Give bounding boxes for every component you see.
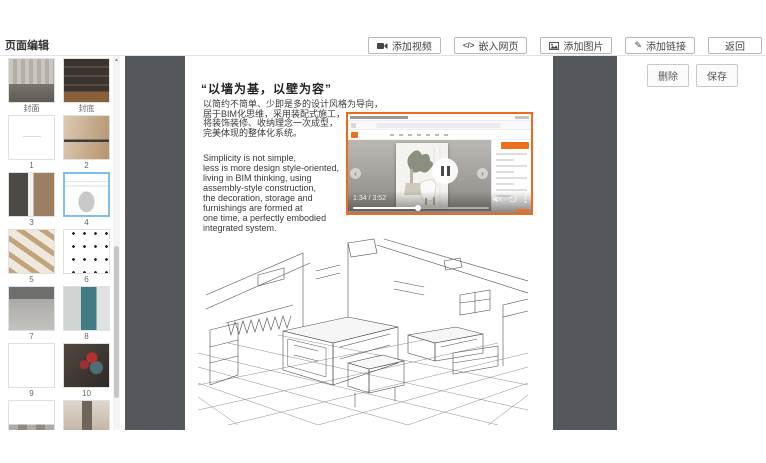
thumbnail-label: 5 bbox=[8, 274, 55, 285]
thumbnail-label: 封面 bbox=[8, 103, 55, 114]
page-thumbnail[interactable] bbox=[8, 400, 55, 430]
thumbnail-label: 3 bbox=[8, 217, 55, 228]
toolbar-button[interactable]: ✎ 添加链接 bbox=[625, 37, 695, 54]
thumbnail-image[interactable] bbox=[63, 172, 110, 217]
document-page[interactable]: “以墙为基，以壁为容” 以简约不简单、少即是多的设计风格为导向，居于BIM化思维… bbox=[185, 56, 553, 430]
thumbnail-grid: 封面 封底 1 2 3 4 5 6 7 8 9 bbox=[8, 58, 110, 430]
thumbnail-label: 2 bbox=[63, 160, 110, 171]
muted-speaker-icon[interactable] bbox=[493, 195, 502, 203]
app-logo bbox=[351, 132, 358, 138]
video-browser-titlebar bbox=[348, 114, 531, 121]
text-line: the decoration, storage and bbox=[203, 193, 339, 203]
toolbar-button[interactable]: </> 嵌入网页 bbox=[454, 37, 528, 54]
code-icon: </> bbox=[463, 42, 475, 50]
editor-canvas: “以墙为基，以壁为容” 以简约不简单、少即是多的设计风格为导向，居于BIM化思维… bbox=[125, 56, 617, 430]
browser-title-text bbox=[350, 116, 408, 119]
image-icon bbox=[549, 42, 559, 50]
thumbnail-label: 6 bbox=[63, 274, 110, 285]
pause-button[interactable] bbox=[432, 158, 458, 184]
carousel-prev-icon[interactable]: ‹ bbox=[350, 168, 361, 179]
text-line: integrated system. bbox=[203, 223, 339, 233]
page-thumbnail[interactable]: 封面 bbox=[8, 58, 55, 115]
page-thumbnail[interactable]: 4 bbox=[63, 172, 110, 229]
thumbnail-image[interactable] bbox=[8, 229, 55, 274]
video-watermark bbox=[516, 209, 529, 212]
page-thumbnail[interactable]: 1 bbox=[8, 115, 55, 172]
page-thumbnail[interactable]: 5 bbox=[8, 229, 55, 286]
thumbnail-label: 10 bbox=[63, 388, 110, 399]
window-controls-icon bbox=[515, 116, 529, 119]
thumbnail-image[interactable] bbox=[63, 286, 110, 331]
video-controls: 1:34 / 3:52 bbox=[348, 191, 531, 213]
text-line: furnishings are formed at bbox=[203, 203, 339, 213]
top-toolbar: 添加视频 </> 嵌入网页 添加图片 ✎ 添加链接 返回 bbox=[368, 37, 762, 54]
thumbnail-sidebar: 封面 封底 1 2 3 4 5 6 7 8 9 bbox=[0, 56, 121, 430]
scroll-up-icon[interactable]: ▲ bbox=[113, 57, 120, 63]
toolbar-button[interactable]: 添加视频 bbox=[368, 37, 441, 54]
kebab-menu-icon[interactable] bbox=[524, 194, 527, 203]
page-title: 页面编辑 bbox=[5, 37, 49, 53]
thumbnail-label: 9 bbox=[8, 388, 55, 399]
thumbnail-image[interactable] bbox=[8, 286, 55, 331]
toolbar-button[interactable]: 返回 bbox=[708, 37, 762, 54]
thumbnail-image[interactable] bbox=[63, 229, 110, 274]
page-thumbnail[interactable]: 9 bbox=[8, 343, 55, 400]
toolbar-button[interactable]: 添加图片 bbox=[540, 37, 612, 54]
app-menu-icons bbox=[390, 134, 450, 136]
text-line: one time, a perfectly embodied bbox=[203, 213, 339, 223]
en-paragraph: Simplicity is not simple,less is more de… bbox=[203, 153, 339, 233]
video-app-toolbar bbox=[348, 130, 531, 140]
page-thumbnail[interactable]: 7 bbox=[8, 286, 55, 343]
video-time: 1:34 / 3:52 bbox=[353, 195, 386, 202]
video-progress-played bbox=[353, 207, 418, 209]
carousel-next-icon[interactable]: › bbox=[477, 168, 488, 179]
thumbnail-image[interactable] bbox=[8, 172, 55, 217]
thumbnail-label: 4 bbox=[63, 217, 110, 228]
thumbnail-image[interactable] bbox=[8, 343, 55, 388]
action-buttons: 删除 保存 bbox=[647, 64, 738, 87]
text-line: living in BIM thinking, using bbox=[203, 173, 339, 183]
video-browser-addressbar bbox=[348, 121, 531, 130]
thumbnail-label: 封底 bbox=[63, 103, 110, 114]
thumbnail-image[interactable] bbox=[8, 58, 55, 103]
video-progress-bar[interactable] bbox=[353, 207, 489, 209]
footer-strip bbox=[0, 430, 766, 463]
thumbnail-image[interactable] bbox=[63, 115, 110, 160]
delete-button[interactable]: 删除 bbox=[647, 64, 689, 87]
interior-sketch-image bbox=[198, 235, 528, 425]
sidebar-scrollbar[interactable]: ▲ bbox=[113, 56, 120, 430]
video-camera-icon bbox=[377, 42, 388, 50]
page-thumbnail[interactable]: 6 bbox=[63, 229, 110, 286]
page-editor-window: 页面编辑 添加视频 </> 嵌入网页 添加图片 ✎ 添加链接 返回 删除 保存 … bbox=[0, 0, 766, 463]
thumbnail-image[interactable] bbox=[8, 115, 55, 160]
thumbnail-image[interactable] bbox=[8, 400, 55, 430]
thumbnail-image[interactable] bbox=[63, 400, 110, 430]
text-line: assembly-style construction, bbox=[203, 183, 339, 193]
loop-icon[interactable] bbox=[509, 195, 517, 203]
text-line: Simplicity is not simple, bbox=[203, 153, 339, 163]
embedded-video-player[interactable]: ‹ › 1:34 / 3:52 bbox=[346, 112, 533, 215]
thumbnail-label: 1 bbox=[8, 160, 55, 171]
thumbnail-label: 8 bbox=[63, 331, 110, 342]
scrollbar-thumb[interactable] bbox=[114, 246, 119, 398]
thumbnail-image[interactable] bbox=[63, 58, 110, 103]
thumbnail-image[interactable] bbox=[63, 343, 110, 388]
panel-action-button bbox=[501, 142, 529, 149]
page-thumbnail[interactable]: 10 bbox=[63, 343, 110, 400]
page-thumbnail[interactable]: 3 bbox=[8, 172, 55, 229]
text-line: less is more design style-oriented, bbox=[203, 163, 339, 173]
video-progress-knob[interactable] bbox=[415, 205, 421, 211]
page-thumbnail[interactable]: 封底 bbox=[63, 58, 110, 115]
link-icon: ✎ bbox=[634, 41, 642, 50]
save-button[interactable]: 保存 bbox=[696, 64, 738, 87]
address-field bbox=[376, 123, 501, 128]
back-icon bbox=[351, 123, 356, 128]
page-thumbnail[interactable] bbox=[63, 400, 110, 430]
page-thumbnail[interactable]: 8 bbox=[63, 286, 110, 343]
video-control-icons bbox=[493, 194, 527, 203]
document-heading: “以墙为基，以壁为容” bbox=[201, 80, 332, 97]
thumbnail-label: 7 bbox=[8, 331, 55, 342]
page-thumbnail[interactable]: 2 bbox=[63, 115, 110, 172]
